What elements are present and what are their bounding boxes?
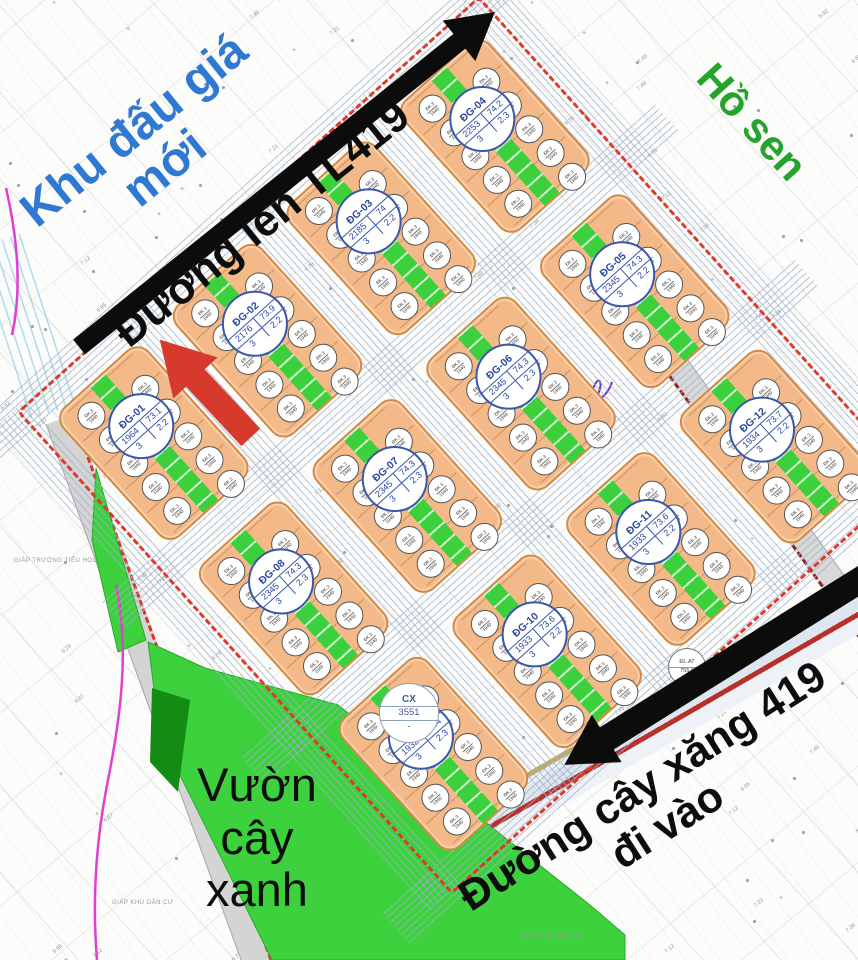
label-line: Vườn <box>197 758 317 811</box>
survey-dot <box>175 857 178 860</box>
label-adjacent-school: GIÁP TRƯỜNG TIỂU HỌC <box>14 558 97 564</box>
survey-dot <box>9 162 12 165</box>
survey-dot <box>793 777 796 780</box>
highlight-arrow-icon <box>150 328 272 456</box>
survey-dot <box>850 134 853 137</box>
label-adjacent-residential-right: GIÁP KHU DÂN CƯ <box>522 933 584 939</box>
park-area-value: 3551 <box>380 706 438 720</box>
survey-dot <box>802 831 805 834</box>
survey-dot <box>17 184 20 187</box>
survey-cross: + <box>59 771 63 778</box>
park-code: CX <box>380 693 438 706</box>
survey-dot <box>753 920 756 923</box>
survey-dot <box>619 935 622 938</box>
survey-cross: + <box>779 895 783 902</box>
label-line: xanh <box>206 863 308 916</box>
label-adjacent-residential-left: GIÁP KHU DÂN CƯ <box>112 900 174 906</box>
survey-dot <box>55 732 58 735</box>
survey-cross: + <box>95 811 99 818</box>
survey-dot <box>746 879 749 882</box>
survey-cross: + <box>52 0 56 7</box>
park-area-label: CX 3551 - <box>379 683 439 743</box>
survey-cross: + <box>292 47 296 54</box>
survey-dot <box>841 682 844 685</box>
park-dash: - <box>380 721 438 733</box>
label-line: cây <box>220 811 293 864</box>
cadastral-map-canvas: ++6.957.216.78++7.456.957.21++6.877.456.… <box>0 0 858 960</box>
label-green-garden: Vườn cây xanh <box>197 759 317 917</box>
survey-cross: + <box>126 26 130 33</box>
survey-dot <box>771 839 774 842</box>
